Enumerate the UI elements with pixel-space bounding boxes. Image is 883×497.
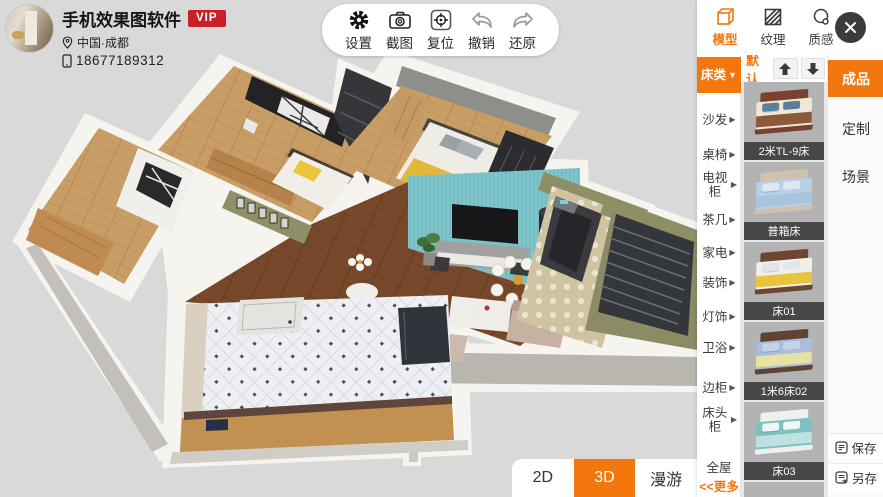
- location-pin-icon: [62, 36, 73, 49]
- category-tea-table[interactable]: 茶几▶: [697, 208, 741, 232]
- app-window: 手机效果图软件 VIP 中国·成都 18677189312 设置: [0, 0, 883, 497]
- category-bathroom[interactable]: 卫浴▶: [697, 336, 741, 360]
- product-name: 床03: [744, 462, 824, 480]
- screenshot-button[interactable]: 截图: [386, 8, 413, 52]
- reset-target-icon: [430, 8, 452, 31]
- category-nightstand[interactable]: 床头柜▶: [697, 401, 741, 439]
- tab-custom[interactable]: 定制: [828, 110, 883, 147]
- product-list: 默认 2米TL-9床 普箱床: [741, 55, 827, 497]
- catalog-panel: 模型 纹理 质感 床类▼ 沙发▶ 桌椅▶ 电视柜▶ 茶几▶ 家电▶: [697, 0, 883, 497]
- location-text: 中国·成都: [77, 34, 129, 51]
- user-profile[interactable]: 手机效果图软件 VIP 中国·成都 18677189312: [6, 5, 226, 68]
- save-as-button[interactable]: 另存: [828, 463, 883, 490]
- view-3d-button[interactable]: 3D: [574, 459, 636, 497]
- product-card[interactable]: 床01: [744, 242, 824, 320]
- app-title: 手机效果图软件: [62, 6, 181, 31]
- more-categories-link[interactable]: <<更多: [697, 476, 741, 495]
- product-card[interactable]: 1米6床02: [744, 322, 824, 400]
- category-tables[interactable]: 桌椅▶: [697, 143, 741, 167]
- coffee-table: [448, 296, 512, 332]
- room-kitchen: [180, 295, 454, 452]
- category-lighting[interactable]: 灯饰▶: [697, 305, 741, 329]
- product-card-partial[interactable]: [744, 482, 824, 497]
- settings-button[interactable]: 设置: [345, 8, 372, 52]
- tab-texture[interactable]: 纹理: [751, 7, 795, 48]
- cube-icon: [715, 7, 735, 27]
- phone-row: 18677189312: [62, 53, 226, 68]
- product-name: 2米TL-9床: [744, 142, 824, 160]
- undo-arrow-icon: [470, 8, 494, 31]
- product-thumbnail: [744, 82, 824, 142]
- location-row: 中国·成都: [62, 34, 226, 51]
- product-name: 床01: [744, 302, 824, 320]
- material-sphere-icon: [811, 7, 831, 27]
- library-tabs: 成品 定制 场景 保存 另存: [827, 55, 883, 497]
- phone-icon: [62, 54, 72, 68]
- tab-model[interactable]: 模型: [703, 7, 747, 48]
- product-thumbnail: [744, 162, 824, 222]
- vip-badge: VIP: [188, 10, 226, 27]
- category-beds[interactable]: 床类▼: [697, 57, 741, 93]
- product-card[interactable]: 普箱床: [744, 162, 824, 240]
- view-roam-button[interactable]: 漫游: [635, 459, 697, 497]
- camera-icon: [388, 8, 412, 31]
- product-thumbnail: [744, 242, 824, 302]
- close-icon[interactable]: [835, 12, 866, 43]
- viewport-3d[interactable]: 手机效果图软件 VIP 中国·成都 18677189312 设置: [0, 0, 697, 497]
- category-side-cabinet[interactable]: 边柜▶: [697, 376, 741, 400]
- category-decoration[interactable]: 装饰▶: [697, 271, 741, 295]
- gear-icon: [348, 8, 370, 31]
- avatar[interactable]: [6, 5, 53, 52]
- tab-finished[interactable]: 成品: [828, 60, 883, 97]
- save-button[interactable]: 保存: [828, 433, 883, 460]
- tv-screen: [452, 204, 518, 244]
- reset-view-button[interactable]: 复位: [427, 8, 454, 52]
- product-thumbnail: [744, 402, 824, 462]
- sort-bar: 默认: [741, 55, 827, 82]
- product-card[interactable]: 床03: [744, 402, 824, 480]
- texture-icon: [763, 7, 783, 27]
- main-toolbar: 设置 截图 复位 撤销: [322, 4, 559, 56]
- panel-tabs: 模型 纹理 质感: [697, 0, 883, 55]
- product-name: 1米6床02: [744, 382, 824, 400]
- category-tv-cabinet[interactable]: 电视柜▶: [697, 166, 741, 204]
- save-icon: [835, 441, 848, 454]
- undo-button[interactable]: 撤销: [468, 8, 495, 52]
- product-name: 普箱床: [744, 222, 824, 240]
- product-card[interactable]: 2米TL-9床: [744, 82, 824, 160]
- redo-arrow-icon: [511, 8, 535, 31]
- phone-number: 18677189312: [76, 53, 164, 68]
- tab-scene[interactable]: 场景: [828, 158, 883, 195]
- arrow-up-icon[interactable]: [773, 58, 797, 79]
- product-thumbnail: [744, 322, 824, 382]
- floorplan-render[interactable]: [0, 0, 697, 497]
- arrow-down-icon[interactable]: [801, 58, 825, 79]
- category-appliances[interactable]: 家电▶: [697, 241, 741, 265]
- save-as-icon: [835, 471, 849, 484]
- view-2d-button[interactable]: 2D: [512, 459, 574, 497]
- category-list: 床类▼ 沙发▶ 桌椅▶ 电视柜▶ 茶几▶ 家电▶ 装饰▶ 灯饰▶ 卫浴▶ 边柜▶…: [697, 55, 741, 497]
- view-mode-switch: 2D 3D 漫游: [512, 459, 697, 497]
- redo-button[interactable]: 还原: [509, 8, 536, 52]
- category-sofa[interactable]: 沙发▶: [697, 108, 741, 132]
